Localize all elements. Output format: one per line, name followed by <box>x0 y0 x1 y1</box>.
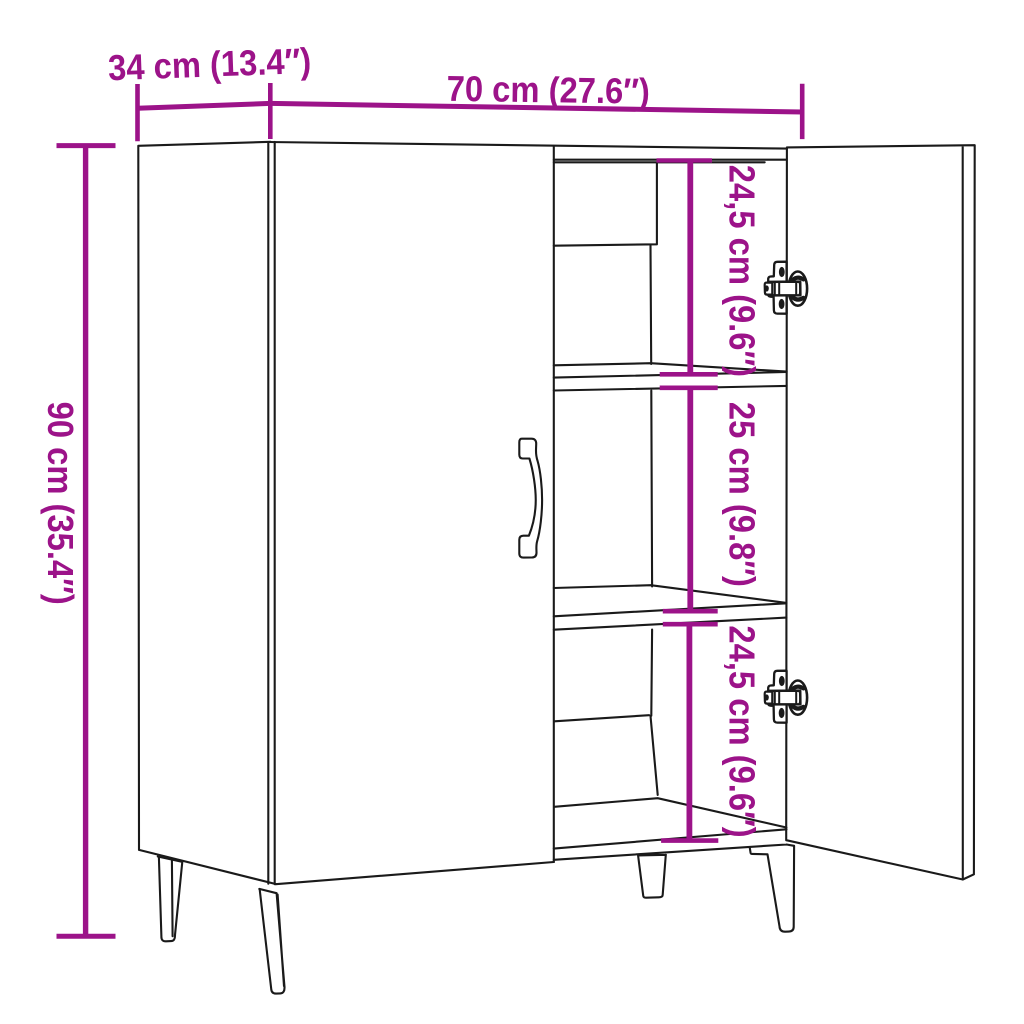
svg-text:70 cm (27.6″): 70 cm (27.6″) <box>446 69 650 112</box>
svg-text:24,5 cm (9.6″): 24,5 cm (9.6″) <box>721 165 761 377</box>
svg-text:25 cm (9.8″): 25 cm (9.8″) <box>721 402 761 587</box>
svg-text:90 cm (35.4″): 90 cm (35.4″) <box>40 402 80 605</box>
svg-text:34 cm (13.4″): 34 cm (13.4″) <box>107 41 312 88</box>
svg-text:24,5 cm (9.6″): 24,5 cm (9.6″) <box>721 625 761 837</box>
